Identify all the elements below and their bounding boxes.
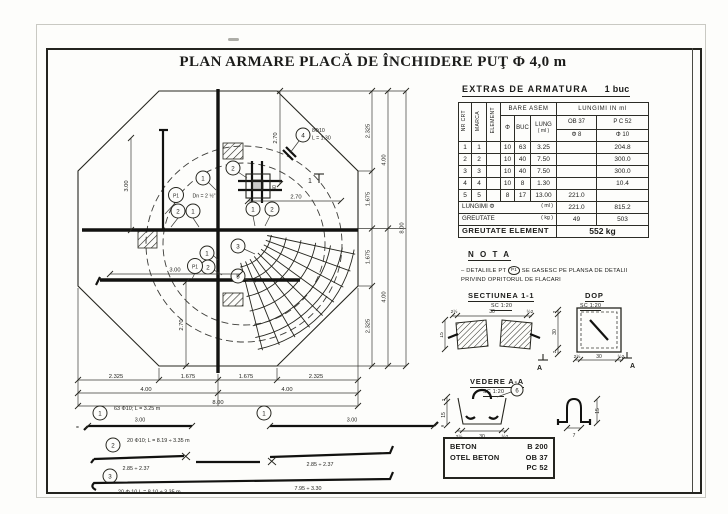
- p1-chip: P1: [508, 266, 520, 275]
- cell: 63: [515, 142, 531, 154]
- footer-greutate-ob37: 49: [557, 214, 597, 226]
- svg-text:4.00: 4.00: [382, 291, 388, 302]
- group-header-bare-asem: BARE ASEM: [501, 103, 557, 116]
- mid-vertical-dim: 2 30 2: [552, 307, 561, 357]
- bar1-dim: 3.00: [135, 418, 146, 424]
- svg-text:1.675: 1.675: [181, 374, 196, 380]
- bar-shape-1-left: 1 63 Φ10; L = 3.25 m 3.00 =: [76, 406, 195, 431]
- dim-300-left: 3.00: [124, 180, 130, 191]
- dim-30-label-rot: 30: [272, 185, 278, 191]
- material-row-otel: OTEL BETONOB 37: [450, 453, 548, 464]
- radial-mesh-mark5: [240, 235, 355, 350]
- col-header-phi8: Φ 8: [557, 130, 597, 142]
- cell: 2: [459, 154, 472, 166]
- cell: [557, 178, 597, 190]
- col-header-lung: LUNG( ml ): [531, 116, 557, 142]
- cell: 10.4: [597, 178, 649, 190]
- table-row: 3310407.50300.0: [459, 166, 649, 178]
- cell: [487, 166, 501, 178]
- extras-title-text: EXTRAS DE ARMATURA: [462, 84, 589, 94]
- svg-text:1.675: 1.675: [366, 250, 372, 265]
- footer-row-element: GREUTATE ELEMENT 552 kg: [459, 226, 649, 238]
- col-header-buc: BUC: [515, 116, 531, 142]
- bar3-label: 20 Φ 10 L = 8.10 ÷ 3.35 m: [118, 490, 181, 496]
- svg-text:2.325: 2.325: [366, 124, 372, 139]
- section-drawings-svg: 2½ 30 ½2 15 2 30 2 A A: [440, 296, 702, 444]
- hook-bar-figure: 15 7: [558, 396, 601, 439]
- svg-text:30: 30: [596, 354, 602, 360]
- bar2-dim-left: 2.85 ÷ 2.37: [123, 466, 150, 472]
- svg-text:2½: 2½: [451, 308, 458, 315]
- svg-text:2: 2: [176, 209, 180, 216]
- cell: 4: [472, 178, 487, 190]
- table-row: 1110633.25204.8: [459, 142, 649, 154]
- svg-text:30: 30: [552, 329, 558, 335]
- cell: 1.30: [531, 178, 557, 190]
- cell: 10: [501, 154, 515, 166]
- svg-text:2: 2: [231, 166, 235, 173]
- svg-text:30: 30: [489, 309, 495, 315]
- svg-text:1: 1: [205, 251, 209, 258]
- cell: [487, 190, 501, 202]
- bar-marks-lower: 1 2 P1 3 5: [188, 239, 257, 283]
- extras-unit: 1 buc: [605, 84, 630, 94]
- footer-lungimi-ob37: 221.0: [557, 202, 597, 214]
- svg-text:4.00: 4.00: [281, 387, 292, 393]
- cell: 2: [472, 154, 487, 166]
- cell: [557, 154, 597, 166]
- marker-a-left: A: [537, 365, 542, 372]
- cell: 40: [515, 166, 531, 178]
- svg-text:15: 15: [441, 412, 447, 418]
- cell: 1: [472, 142, 487, 154]
- materials-box: BETONB 200 OTEL BETONOB 37 PC 52: [443, 437, 555, 479]
- cell: 300.0: [597, 166, 649, 178]
- footer-greutate-pc52: 503: [597, 214, 649, 226]
- cell: 10: [501, 142, 515, 154]
- vedere-drawing: 6 2 15 2½ 30 ½2: [441, 384, 523, 440]
- svg-text:=: =: [76, 425, 79, 431]
- table-header-row-1: NR CRT MARCA ELEMENT BARE ASEM LUNGIMI I…: [459, 103, 649, 116]
- col-header-phi10: Φ 10: [597, 130, 649, 142]
- cell: 204.8: [597, 142, 649, 154]
- svg-text:½2: ½2: [618, 353, 625, 360]
- svg-text:4.00: 4.00: [140, 387, 151, 393]
- svg-text:3: 3: [108, 474, 112, 481]
- col-header-nr-crt: NR CRT: [459, 103, 472, 142]
- svg-text:1: 1: [308, 178, 312, 185]
- mark4-number: 4: [301, 133, 305, 140]
- footer-element-label: GREUTATE ELEMENT: [459, 226, 557, 238]
- drawing-sheet: PLAN ARMARE PLACĂ DE ÎNCHIDERE PUŢ Φ 4,0…: [0, 0, 728, 514]
- col-header-ob37: OB 37: [557, 116, 597, 130]
- cell: 10: [501, 166, 515, 178]
- section-cut-marker-1: 1: [308, 174, 324, 185]
- bar-shape-1-right: 1 3.00 =: [257, 406, 444, 430]
- hook-dim-right: 15: [595, 408, 601, 414]
- bar-shapes-svg: 1 63 Φ10; L = 3.25 m 3.00 = 1 3.00 = 2 2…: [56, 400, 452, 496]
- footer-row-lungimi: LUNGIMI Φ( ml ) 221.0 815.2: [459, 202, 649, 214]
- nota-text: – DETALIILE PT P1 SE GASESC PE PLANSA DE…: [461, 266, 689, 285]
- cell: 7.50: [531, 166, 557, 178]
- svg-text:2: 2: [206, 265, 210, 272]
- drawing-title: PLAN ARMARE PLACĂ DE ÎNCHIDERE PUŢ Φ 4,0…: [46, 54, 700, 71]
- svg-text:2: 2: [111, 443, 115, 450]
- cell: 5: [459, 190, 472, 202]
- svg-text:1: 1: [191, 209, 195, 216]
- scan-artifact: [228, 38, 239, 41]
- svg-text:2.325: 2.325: [309, 374, 324, 380]
- bar-shape-3: 3 20 Φ 10 L = 8.10 ÷ 3.35 m 7.95 ÷ 3.30: [92, 469, 393, 496]
- nota-title: N O T A: [468, 250, 511, 261]
- svg-text:4.00: 4.00: [382, 154, 388, 165]
- dim-270-mid: 2.70: [290, 195, 301, 201]
- dim-270-bottom: 2.70: [179, 319, 185, 330]
- mark4-bars-label: 8Φ10: [312, 128, 325, 134]
- footer-greutate-label: GREUTATE( kg ): [459, 214, 557, 226]
- cell: [487, 154, 501, 166]
- bar3-dim: 7.95 ÷ 3.30: [295, 486, 322, 492]
- svg-text:2.325: 2.325: [109, 374, 124, 380]
- sectiunea-drawing: 2½ 30 ½2 15: [440, 308, 540, 352]
- material-row-pc52: PC 52: [450, 463, 548, 474]
- col-header-element: ELEMENT: [487, 103, 501, 142]
- cell: [487, 142, 501, 154]
- svg-text:1.675: 1.675: [366, 192, 372, 207]
- mark4-length-label: L = 1.30: [312, 136, 331, 142]
- cell: [557, 142, 597, 154]
- cell: 40: [515, 154, 531, 166]
- cell: 13.00: [531, 190, 557, 202]
- cell: 300.0: [597, 154, 649, 166]
- cell: 5: [472, 190, 487, 202]
- dim-270-top: 2.70: [273, 132, 279, 143]
- hook-dim-bottom: 7: [573, 433, 576, 439]
- material-row-beton: BETONB 200: [450, 442, 548, 453]
- cell: 7.50: [531, 154, 557, 166]
- bar-shape-2: 2 20 Φ10; L = 8.19 ÷ 3.35 m 2.85 ÷ 2.37 …: [91, 438, 393, 472]
- svg-text:2½: 2½: [574, 353, 581, 360]
- detail-mark4: 4 8Φ10 L = 1.30: [283, 128, 331, 160]
- svg-text:2: 2: [552, 350, 557, 353]
- svg-text:1: 1: [98, 411, 102, 418]
- svg-text:1: 1: [201, 176, 205, 183]
- table-row: 5581713.00221.0: [459, 190, 649, 202]
- extras-title: EXTRAS DE ARMATURA1 buc: [462, 84, 630, 97]
- cell: 4: [459, 178, 472, 190]
- col-header-marca: MARCA: [472, 103, 487, 142]
- table-row: 441081.3010.4: [459, 178, 649, 190]
- sectiunea-dim-left: 15: [440, 332, 445, 338]
- bar2-dim-right: 2.85 ÷ 2.37: [307, 462, 334, 468]
- footer-lungimi-pc52: 815.2: [597, 202, 649, 214]
- col-header-phi: Φ: [501, 116, 515, 142]
- group-header-lungimi: LUNGIMI IN ml: [557, 103, 649, 116]
- footer-element-value: 552 kg: [557, 226, 649, 238]
- svg-text:1: 1: [251, 207, 255, 214]
- cell: [597, 190, 649, 202]
- cell: 17: [515, 190, 531, 202]
- dim-300-bar: 3.00: [169, 268, 180, 274]
- p1-upper: P1: [173, 194, 179, 200]
- extras-table: NR CRT MARCA ELEMENT BARE ASEM LUNGIMI I…: [458, 102, 649, 238]
- dop-drawing: 2½ 30 ½2: [573, 308, 625, 362]
- cell: 8: [515, 178, 531, 190]
- cell: 3: [459, 166, 472, 178]
- bar1r-dim: 3.00: [347, 418, 358, 424]
- col-header-pc52: P C 52: [597, 116, 649, 130]
- footer-lungimi-label: LUNGIMI Φ( ml ): [459, 202, 557, 214]
- svg-text:1.675: 1.675: [239, 374, 254, 380]
- cell: 10: [501, 178, 515, 190]
- svg-text:2: 2: [270, 207, 274, 214]
- cell: [487, 178, 501, 190]
- cell: 1: [459, 142, 472, 154]
- cell: 3.25: [531, 142, 557, 154]
- cell: 3: [472, 166, 487, 178]
- footer-row-greutate: GREUTATE( kg ) 49 503: [459, 214, 649, 226]
- svg-text:½2: ½2: [527, 308, 534, 315]
- svg-text:3: 3: [236, 244, 240, 251]
- p1-lower: P1: [192, 265, 198, 271]
- svg-text:2.325: 2.325: [366, 319, 372, 334]
- p1-note: Dn = 2 ½": [192, 193, 215, 200]
- table-row: 2210407.50300.0: [459, 154, 649, 166]
- dim-right-total: 8.00: [400, 222, 406, 233]
- marker-a-right: A: [630, 363, 635, 370]
- cell: 8: [501, 190, 515, 202]
- svg-text:2: 2: [552, 310, 557, 313]
- cell: 221.0: [557, 190, 597, 202]
- svg-text:1: 1: [262, 411, 266, 418]
- cell: [557, 166, 597, 178]
- plan-drawing-svg: 30 30 4 8Φ10 L = 1.30 1 1 2 P1 Dn =: [52, 78, 460, 410]
- bar1-label: 63 Φ10; L = 3.25 m: [114, 406, 161, 412]
- bar2-label: 20 Φ10; L = 8.19 ÷ 3.35 m: [127, 438, 190, 444]
